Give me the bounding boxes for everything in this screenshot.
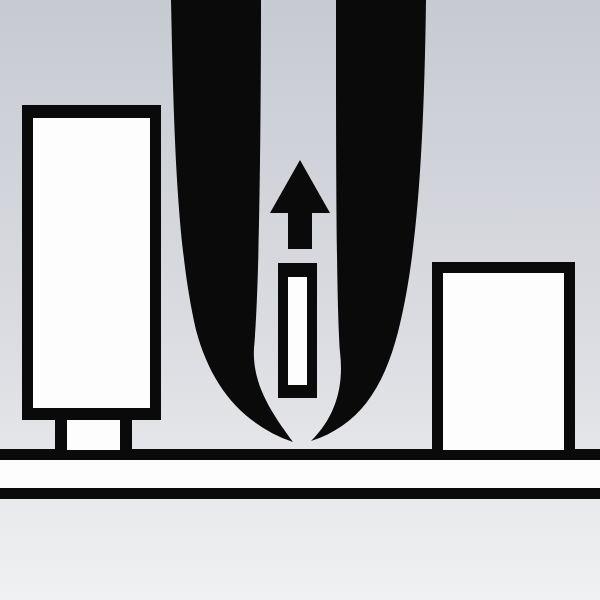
component-body — [288, 277, 307, 385]
illustration — [0, 0, 600, 600]
left-container — [22, 105, 161, 455]
left-container-body — [33, 118, 150, 408]
tweezers-left-prong-icon — [171, 0, 293, 442]
right-container-body — [443, 273, 564, 450]
left-container-foot-body — [67, 420, 120, 450]
left-container-foot — [55, 412, 132, 455]
surface-white-band — [0, 455, 600, 493]
tweezers-right-prong-icon — [311, 0, 426, 441]
work-surface — [0, 449, 600, 499]
surface-bottom-line — [0, 488, 600, 499]
component — [278, 263, 317, 398]
illustration-canvas — [0, 0, 600, 600]
up-arrow-icon — [270, 160, 330, 249]
right-container — [432, 262, 575, 455]
